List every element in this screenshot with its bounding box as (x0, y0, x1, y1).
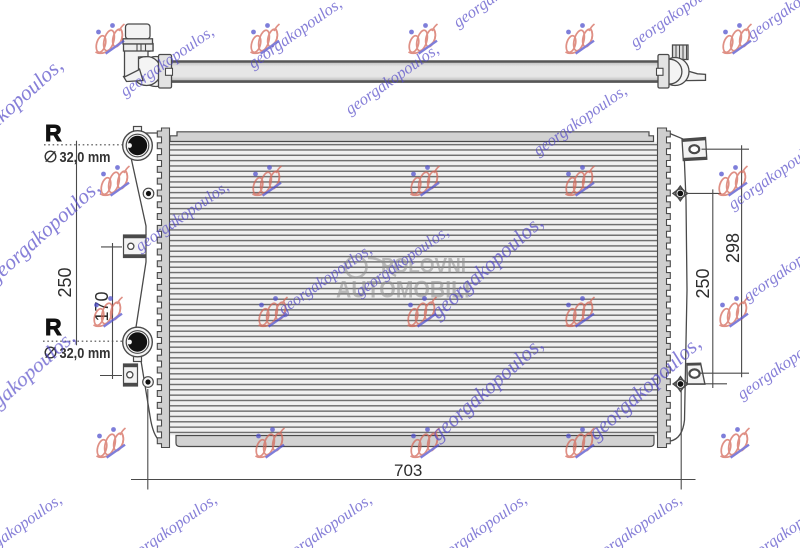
svg-text:250: 250 (693, 268, 713, 298)
svg-text:250: 250 (55, 267, 75, 297)
svg-text:32,0 mm: 32,0 mm (60, 150, 111, 166)
svg-text:R: R (45, 120, 62, 146)
svg-text:298: 298 (723, 233, 743, 263)
svg-text:703: 703 (394, 461, 422, 480)
